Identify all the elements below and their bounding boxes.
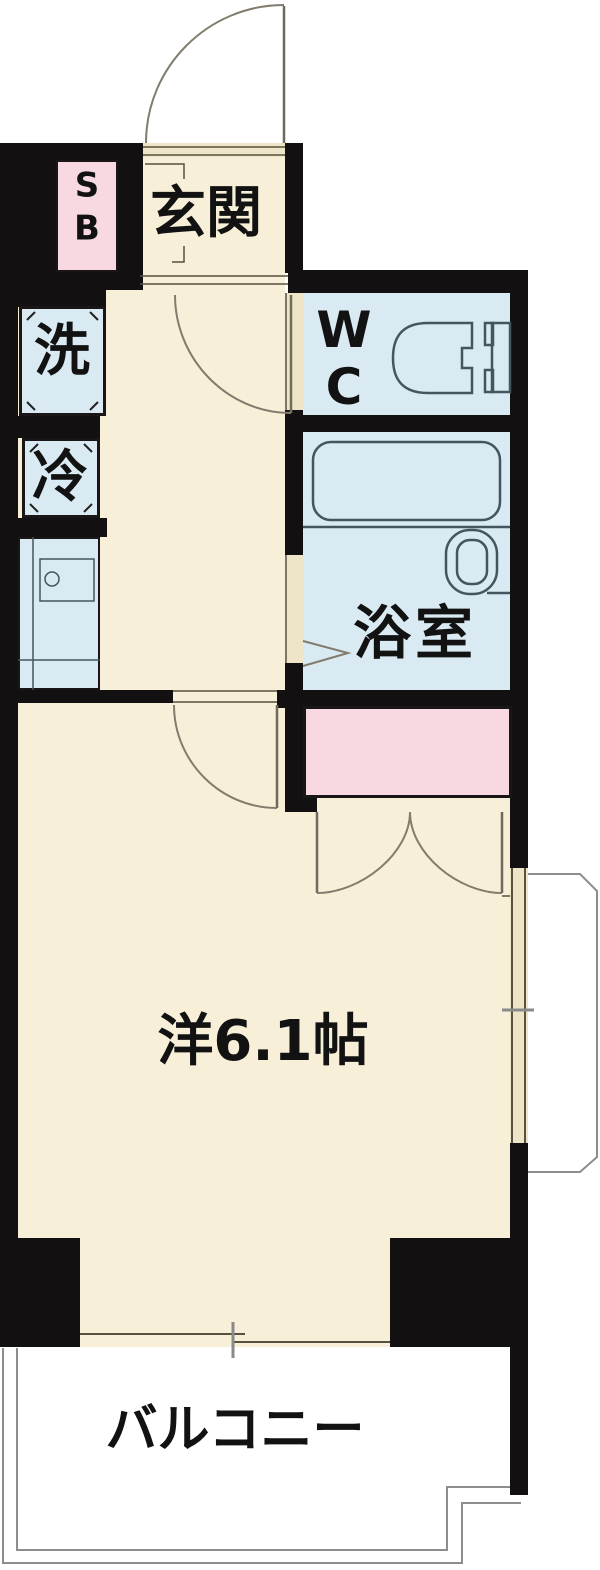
shoe-box-label-s: S — [75, 165, 100, 208]
wc-label-c: C — [326, 359, 363, 416]
wall — [510, 290, 528, 868]
kitchen-counter — [18, 537, 100, 690]
bay-window — [510, 868, 528, 1143]
wall — [288, 270, 528, 293]
wall — [0, 270, 140, 290]
balcony-label: バルコニー — [106, 1404, 365, 1456]
fridge-label: 冷 — [32, 450, 88, 506]
wall — [285, 143, 303, 273]
wall — [18, 288, 106, 307]
wall — [390, 1238, 528, 1347]
genkan-label: 玄関 — [150, 186, 262, 242]
wall — [18, 518, 107, 537]
washer-label: 洗 — [34, 324, 90, 380]
entrance-door-icon — [143, 5, 285, 155]
wc-label-w: W — [316, 302, 371, 359]
wall — [0, 1238, 80, 1347]
bathroom-label: 浴室 — [353, 604, 477, 662]
wall — [0, 690, 173, 703]
wc-door-opening — [285, 293, 303, 410]
room-closet — [303, 706, 512, 798]
wall — [510, 1143, 528, 1495]
wc-label: W C — [316, 302, 371, 416]
shoe-box-label: S B — [74, 165, 100, 250]
wall — [18, 416, 100, 438]
main-room-label: 洋6.1帖 — [157, 1014, 368, 1070]
entrance-threshold — [143, 143, 285, 157]
wall — [0, 143, 18, 1347]
floor-plan: 玄関 S B 洗 W C 冷 浴室 洋6.1帖 バルコニー — [0, 0, 600, 1570]
wall — [303, 415, 528, 432]
wall — [285, 410, 303, 555]
bathroom-door-opening — [285, 555, 303, 663]
shoe-box-label-b: B — [74, 207, 100, 250]
